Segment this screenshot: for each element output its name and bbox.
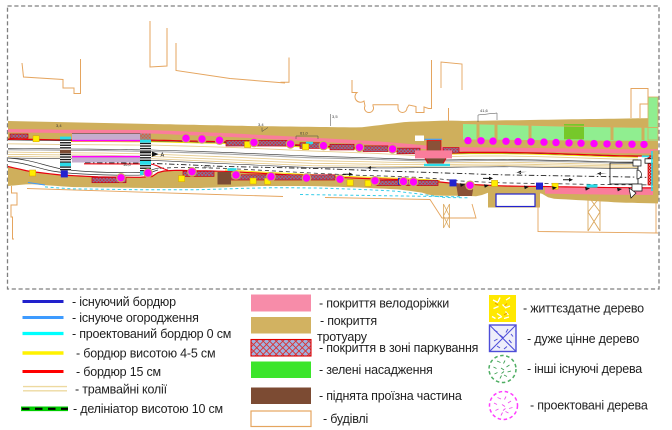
svg-text:- покриття: - покриття xyxy=(320,314,377,328)
svg-text:- зелені насадження: - зелені насадження xyxy=(319,363,433,377)
svg-text:- дуже цінне дерево: - дуже цінне дерево xyxy=(527,332,639,346)
svg-text:3,4: 3,4 xyxy=(258,122,264,127)
svg-text:61,0: 61,0 xyxy=(300,131,309,136)
svg-text:- бордюр висотою 4-5 см: - бордюр висотою 4-5 см xyxy=(76,346,215,360)
svg-text:- будівлі: - будівлі xyxy=(323,412,368,426)
svg-text:16,0: 16,0 xyxy=(123,162,132,167)
svg-text:- бордюр 15 см: - бордюр 15 см xyxy=(76,365,161,379)
svg-text:- існуюче огородження: - існуюче огородження xyxy=(72,311,199,325)
svg-text:- інші існуючі дерева: - інші існуючі дерева xyxy=(527,362,642,376)
svg-text:- проектовані дерева: - проектовані дерева xyxy=(530,399,648,413)
svg-text:- покриття в зоні паркування: - покриття в зоні паркування xyxy=(319,341,478,355)
svg-text:- піднята проїзна частина: - піднята проїзна частина xyxy=(319,389,462,403)
svg-text:36,0: 36,0 xyxy=(203,164,212,169)
svg-text:- трамвайні колії: - трамвайні колії xyxy=(75,382,168,396)
svg-text:3,5: 3,5 xyxy=(332,114,338,119)
svg-text:- проектований бордюр 0 см: - проектований бордюр 0 см xyxy=(72,327,231,341)
svg-text:- покриття велодоріжки: - покриття велодоріжки xyxy=(319,297,449,311)
svg-text:41,6: 41,6 xyxy=(480,108,489,113)
svg-text:- життєздатне дерево: - життєздатне дерево xyxy=(523,302,644,316)
svg-text:3,4: 3,4 xyxy=(56,123,62,128)
svg-text:- існуючий бордюр: - існуючий бордюр xyxy=(72,295,176,309)
svg-text:A: A xyxy=(161,153,165,159)
svg-text:- делініатор висотою 10 см: - делініатор висотою 10 см xyxy=(73,402,223,416)
